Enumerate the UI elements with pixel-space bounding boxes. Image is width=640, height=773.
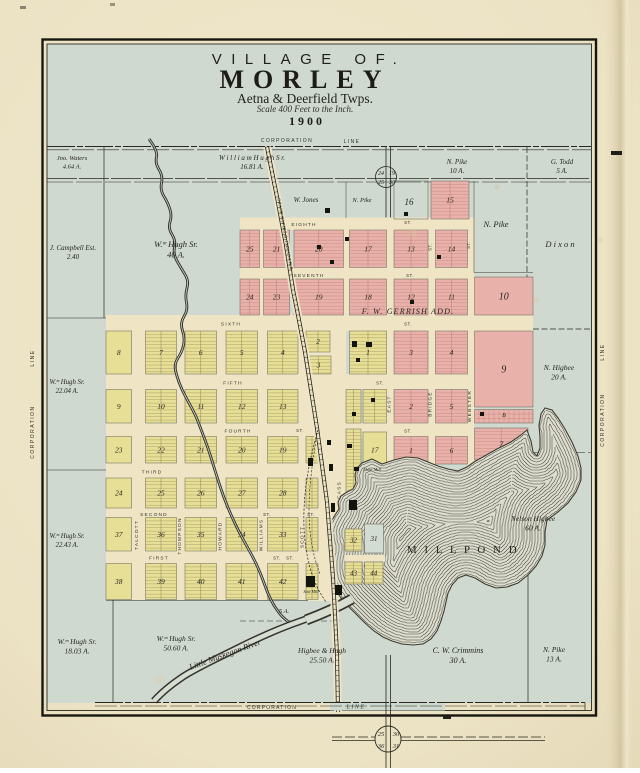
svg-text:W.ᵐ Hugh Sr.: W.ᵐ Hugh Sr. <box>154 239 198 249</box>
svg-text:32: 32 <box>349 537 358 545</box>
svg-text:W. Jones: W. Jones <box>294 196 319 204</box>
svg-text:22.04 A.: 22.04 A. <box>56 388 79 395</box>
svg-text:CORPORATION: CORPORATION <box>261 138 313 144</box>
svg-text:WEBSTER: WEBSTER <box>467 390 473 422</box>
svg-text:SIXTH: SIXTH <box>221 322 241 328</box>
svg-text:24: 24 <box>246 293 254 302</box>
svg-text:FIRST: FIRST <box>149 556 169 562</box>
svg-text:HOWARD: HOWARD <box>218 522 224 551</box>
svg-text:44: 44 <box>370 570 378 578</box>
svg-text:4: 4 <box>281 348 285 357</box>
svg-text:7: 7 <box>159 348 163 357</box>
svg-text:SECOND: SECOND <box>140 512 168 518</box>
svg-text:ST.: ST. <box>404 429 412 434</box>
svg-text:9: 9 <box>117 402 121 411</box>
svg-text:50.60 A.: 50.60 A. <box>163 644 188 653</box>
svg-text:3: 3 <box>408 348 413 357</box>
svg-text:CORPORATION: CORPORATION <box>247 705 297 711</box>
svg-text:EIGHTH: EIGHTH <box>291 222 316 228</box>
svg-text:ST.: ST. <box>307 512 315 517</box>
svg-text:ST.: ST. <box>286 556 294 561</box>
svg-text:THOMPSON: THOMPSON <box>177 517 183 554</box>
svg-text:39: 39 <box>156 577 165 586</box>
svg-text:36: 36 <box>377 743 385 750</box>
svg-text:35: 35 <box>196 530 205 539</box>
svg-text:10 A.: 10 A. <box>450 167 465 175</box>
svg-text:31: 31 <box>392 743 400 750</box>
svg-text:5 A.: 5 A. <box>556 167 567 175</box>
svg-text:ST.: ST. <box>406 273 414 278</box>
svg-text:CORPORATION: CORPORATION <box>30 405 36 458</box>
svg-text:ST.: ST. <box>428 243 433 251</box>
svg-text:EAST: EAST <box>387 395 393 412</box>
svg-text:25: 25 <box>246 244 254 253</box>
svg-text:W.ᵐ Hugh Sr.: W.ᵐ Hugh Sr. <box>157 634 196 643</box>
svg-text:1: 1 <box>409 446 413 455</box>
svg-text:10: 10 <box>157 402 165 411</box>
svg-text:25: 25 <box>378 731 385 738</box>
svg-text:15: 15 <box>446 196 454 205</box>
svg-text:W i l l i a m H u g h S: W i l l i a m H u g h S r. <box>219 154 285 162</box>
svg-text:10: 10 <box>499 292 509 303</box>
svg-text:20: 20 <box>238 445 246 454</box>
svg-text:26: 26 <box>197 489 205 498</box>
svg-text:23: 23 <box>273 293 281 302</box>
svg-text:23: 23 <box>115 445 123 454</box>
svg-text:5: 5 <box>240 348 244 357</box>
svg-text:Flour Mill: Flour Mill <box>362 467 381 472</box>
svg-text:18: 18 <box>364 293 372 302</box>
svg-text:LINE: LINE <box>600 343 606 360</box>
svg-text:42: 42 <box>279 577 287 586</box>
svg-text:ST.: ST. <box>376 381 384 386</box>
svg-text:25: 25 <box>157 489 165 498</box>
svg-text:40: 40 <box>197 577 205 586</box>
svg-text:Nelson Higbee: Nelson Higbee <box>510 514 556 523</box>
svg-text:4.64 A.: 4.64 A. <box>63 164 82 171</box>
svg-text:Scale 400 Feet to the Inch.: Scale 400 Feet to the Inch. <box>257 104 353 114</box>
svg-text:FOURTH: FOURTH <box>224 429 251 435</box>
svg-text:1: 1 <box>366 348 370 357</box>
svg-text:14: 14 <box>448 244 456 253</box>
svg-text:FIFTH: FIFTH <box>223 381 243 387</box>
svg-text:2.40: 2.40 <box>67 253 80 261</box>
svg-text:41: 41 <box>238 577 246 586</box>
svg-text:11: 11 <box>448 293 455 302</box>
svg-text:THIRD: THIRD <box>142 470 163 476</box>
svg-text:11: 11 <box>197 402 204 411</box>
svg-text:BRIDGE: BRIDGE <box>428 391 434 417</box>
svg-text:33: 33 <box>278 530 287 539</box>
svg-text:WILLIAMS: WILLIAMS <box>259 519 265 552</box>
svg-text:D i x o n: D i x o n <box>544 239 574 249</box>
svg-text:CORPORATION: CORPORATION <box>600 393 606 446</box>
svg-text:2: 2 <box>316 338 320 346</box>
svg-text:ST.: ST. <box>466 241 471 249</box>
svg-text:6: 6 <box>199 348 203 357</box>
svg-text:21: 21 <box>197 445 205 454</box>
svg-text:Jno. Waters: Jno. Waters <box>57 155 88 162</box>
svg-text:ST.: ST. <box>404 220 412 225</box>
svg-text:MORLEY: MORLEY <box>220 65 391 94</box>
svg-text:3: 3 <box>316 361 321 369</box>
svg-text:13: 13 <box>279 402 287 411</box>
svg-text:G. Todd: G. Todd <box>551 158 574 166</box>
svg-text:17: 17 <box>371 446 379 455</box>
svg-text:37: 37 <box>114 530 123 539</box>
svg-text:19: 19 <box>389 171 395 177</box>
svg-text:SEVENTH: SEVENTH <box>293 273 324 279</box>
svg-text:16.81 A.: 16.81 A. <box>240 163 264 171</box>
svg-text:13: 13 <box>407 244 415 253</box>
svg-text:N. Higbee: N. Higbee <box>543 363 575 372</box>
svg-text:N. Pike: N. Pike <box>351 197 371 204</box>
svg-text:60 A.: 60 A. <box>525 524 541 533</box>
svg-text:19: 19 <box>315 293 323 302</box>
svg-text:LINE: LINE <box>344 139 361 145</box>
svg-text:22.43 A.: 22.43 A. <box>56 542 79 549</box>
svg-text:ST.: ST. <box>296 428 304 433</box>
svg-text:5 A.: 5 A. <box>279 608 290 615</box>
svg-text:5: 5 <box>450 402 454 411</box>
svg-text:F. W. GERRISH ADD.: F. W. GERRISH ADD. <box>361 307 455 316</box>
svg-text:40 A.: 40 A. <box>167 250 185 260</box>
svg-text:ST.: ST. <box>263 512 271 517</box>
svg-text:LINE: LINE <box>30 349 36 366</box>
svg-text:Higbee & Hugh: Higbee & Hugh <box>297 646 346 655</box>
svg-text:13 A.: 13 A. <box>546 655 562 664</box>
svg-text:12: 12 <box>238 402 246 411</box>
svg-text:43: 43 <box>350 570 358 578</box>
svg-text:Saw Mill: Saw Mill <box>303 589 319 594</box>
svg-text:4: 4 <box>450 348 454 357</box>
svg-text:19: 19 <box>279 445 287 454</box>
svg-text:2: 2 <box>409 402 413 411</box>
svg-text:16: 16 <box>405 197 415 207</box>
svg-text:18.03 A.: 18.03 A. <box>64 647 89 656</box>
svg-text:27: 27 <box>238 489 246 498</box>
svg-text:28: 28 <box>279 489 287 498</box>
svg-text:25: 25 <box>378 180 384 186</box>
svg-text:J. Campbell Est.: J. Campbell Est. <box>50 244 97 252</box>
svg-text:30: 30 <box>392 731 400 738</box>
svg-text:N. Pike: N. Pike <box>542 645 566 654</box>
svg-text:31: 31 <box>370 535 378 543</box>
svg-text:N. Pike: N. Pike <box>482 219 508 229</box>
svg-text:30 A.: 30 A. <box>449 656 467 665</box>
svg-text:LINE: LINE <box>345 705 365 711</box>
svg-text:21: 21 <box>273 244 281 253</box>
svg-text:38: 38 <box>114 577 123 586</box>
svg-text:22: 22 <box>157 445 165 454</box>
svg-text:CASS: CASS <box>337 481 343 499</box>
svg-text:36: 36 <box>156 530 165 539</box>
svg-text:ST.: ST. <box>273 556 281 561</box>
svg-text:SCOTT: SCOTT <box>300 526 306 548</box>
svg-text:8: 8 <box>117 348 121 357</box>
svg-text:20 A.: 20 A. <box>551 373 567 382</box>
svg-text:TALCOTT: TALCOTT <box>134 520 140 550</box>
svg-text:6: 6 <box>450 446 454 455</box>
svg-text:W.ᵐ Hugh Sr.: W.ᵐ Hugh Sr. <box>49 379 84 386</box>
svg-text:N. Pike: N. Pike <box>446 158 468 166</box>
svg-text:ST.: ST. <box>404 322 412 327</box>
svg-text:1900: 1900 <box>289 114 325 128</box>
svg-text:17: 17 <box>364 244 372 253</box>
svg-text:24: 24 <box>115 489 123 498</box>
svg-text:M I L L P O N D: M I L L P O N D <box>407 544 519 556</box>
svg-text:9: 9 <box>501 365 506 376</box>
svg-text:B: B <box>502 413 506 419</box>
svg-text:W.ᵐ Hugh Sr.: W.ᵐ Hugh Sr. <box>49 533 84 540</box>
svg-text:W.ᵐ Hugh Sr.: W.ᵐ Hugh Sr. <box>58 637 97 646</box>
svg-text:C. W. Crimmins: C. W. Crimmins <box>433 646 484 655</box>
svg-text:25.50 A.: 25.50 A. <box>309 656 334 665</box>
svg-text:24: 24 <box>378 170 384 177</box>
